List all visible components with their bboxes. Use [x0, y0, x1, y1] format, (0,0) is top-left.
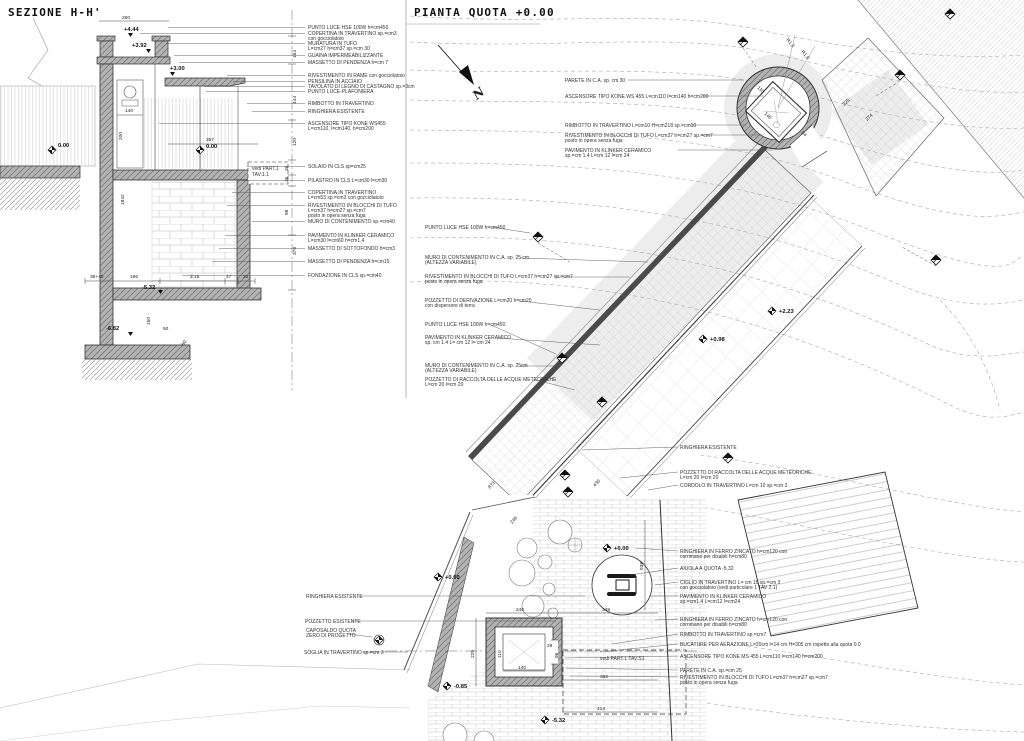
dim: 164 — [292, 50, 298, 58]
callout: RIMBOTTO IN TRAVERTINO — [308, 101, 374, 107]
level-marker: +4.44 — [124, 27, 139, 33]
level-marker: +0.00 — [445, 575, 460, 581]
architectural-drawing: vedi PART.1 TAV.S1 +2.23 +0.98 +0.00 +0.… — [0, 0, 1024, 741]
callout: BUCATURE PER AERAZIONE L=20cm l=14 cm H=… — [680, 642, 861, 648]
north-label: N — [469, 84, 488, 103]
callout: MURO DI CONTENIMENTO IN C.A. sp. 25cm(AL… — [425, 363, 528, 374]
dim: 196 — [130, 274, 138, 280]
callout: RIVESTIMENTO IN BLOCCHI DI TUFO L=cm37 h… — [680, 675, 828, 686]
dim: 378 — [292, 247, 298, 255]
callout: PILASTRO IN CLS L=cm30 l=cm30 — [308, 178, 387, 184]
callout: PUNTO LUCE HSE 100W h=cm450 — [425, 225, 506, 231]
dim: 47 — [226, 274, 232, 280]
level-marker: +0.98 — [710, 337, 725, 343]
dim: 140 — [518, 665, 526, 671]
level-marker: -5.32 — [142, 285, 155, 291]
callout: ASCENSORE TIPO KONE MS 455 L=cm110 l=cm1… — [680, 654, 823, 660]
callout: RIVESTIMENTO IN BLOCCHI DI TUFO L=cm37 h… — [565, 133, 713, 144]
dim: 36 — [284, 165, 290, 171]
section-drawing: SEZIONE H-H' 0.00 — [0, 0, 415, 398]
level-marker: -5.32 — [552, 718, 565, 724]
callout: CIGLIO IN TRAVERTINO L= cm 15 sp.=cm 3co… — [680, 580, 781, 591]
dim: 36 — [284, 176, 290, 182]
level-marker: 0.00 — [58, 143, 69, 149]
callout: POZZETTO DI RACCOLTA DELLE ACQUE METEORI… — [680, 470, 812, 481]
callout: RINGHIERA ESISTENTE — [680, 445, 737, 451]
level-marker: +3.92 — [132, 43, 147, 49]
dim: 225 — [470, 650, 476, 658]
dim: 120 — [292, 138, 298, 146]
callout: ASCENSORE TIPO KONE WS 455 L=cm110 l=cm1… — [565, 94, 709, 100]
dim: 39+40 — [90, 274, 104, 280]
level-marker: +3.00 — [170, 66, 185, 72]
callout: PARETE IN C.A. sp.=cm 25 — [680, 668, 742, 674]
dim: 414 — [597, 706, 605, 712]
callout: GUAINA IMPERMEABILIZZANTE — [308, 53, 384, 59]
callout: CAPOSALDO QUOTAZERO DI PROGETTO — [306, 628, 357, 639]
level-marker: +0.00 — [614, 546, 629, 552]
plan-title: PIANTA QUOTA +0.00 — [414, 6, 555, 19]
callout: AIUOLA A QUOTA -5.32 — [680, 566, 734, 572]
level-marker: -0.85 — [454, 684, 468, 690]
callout: POZZETTO DI DERIVAZIONE L=cm20 h=cm20con… — [425, 298, 532, 309]
level-marker: +2.23 — [779, 309, 794, 315]
background-facade — [140, 98, 235, 168]
callout: PUNTO LUCE-PLAFONIERA — [308, 89, 374, 95]
level-marker: -6.82 — [106, 326, 119, 332]
callout: RINGHIERA ESISTENTE — [306, 594, 363, 600]
section-title: SEZIONE H-H' — [8, 6, 102, 19]
drawing-sheet: vedi PART.1 TAV.S1 +2.23 +0.98 +0.00 +0.… — [0, 0, 1024, 741]
callout: MURO DI CONTENIMENTO IN C.A. sp. 25 cm(A… — [425, 255, 529, 266]
dim: 246 — [516, 607, 524, 613]
dim: 349 — [602, 607, 610, 613]
callout: MASSETTO DI PENDENZA h=cm15 — [308, 259, 390, 265]
dim: 150 — [146, 317, 152, 325]
callout: CORDOLO IN TRAVERTINO L=cm 10 sp.=cm 3 — [680, 483, 787, 489]
dim: 20 — [243, 274, 249, 280]
dim: 362 — [600, 674, 608, 680]
callout: FONDAZIONE IN CLS sp.=cm40 — [308, 273, 382, 279]
callout: SOLAIO IN CLS sp=cm25 — [308, 164, 366, 170]
benchmark-caposaldo — [374, 635, 384, 645]
dim: 98 — [284, 209, 290, 215]
dim: 938 — [639, 562, 645, 570]
callout: COPERTINA IN TRAVERTINOL=cm53 sp.=cm3 co… — [308, 190, 384, 201]
callout: RIMBOTTO IN TRAVERTINO sp.=cm7 — [680, 632, 766, 638]
dim: 1842 — [120, 194, 126, 205]
callout: RIVESTIMENTO IN BLOCCHI DI TUFO L=cm37 h… — [425, 274, 573, 285]
callout: MASSETTO DI SOTTOFONDO h=cm3 — [308, 246, 395, 252]
dim: 110 — [497, 650, 503, 658]
callout: RIMBOTTO IN TRAVERTINO L=cm10 H=cm218 sp… — [565, 123, 696, 129]
callout: SOGLIA IN TRAVERTINO sp.=cm 3 — [304, 650, 384, 656]
callout: PARETE IN C.A. sp. cm 30 — [565, 78, 625, 84]
north-arrow: N — [438, 45, 488, 103]
dim: 96 — [554, 652, 560, 658]
callout: MASSETTO DI PENDENZA h=cm 7 — [308, 60, 388, 66]
callout: PAVIMENTO IN KLINKER CERAMICOsp.=cm 1.4 … — [565, 148, 651, 159]
level-marker: 0.00 — [206, 144, 217, 150]
callout: PAVIMENTO IN KLINKER CERAMICOsp. cm 1.4 … — [425, 335, 511, 346]
dim: 260 — [122, 15, 130, 21]
dim: 28 — [547, 643, 553, 649]
callout: MURO DI CONTENIMENTO sp.=cm40 — [308, 219, 395, 225]
dim: 50 — [163, 326, 169, 332]
dim: 444 — [292, 96, 298, 104]
dim: 430 — [592, 478, 602, 488]
callout: PAVIMENTO IN KLINKER CERAMICOsp.=cm1.4 L… — [680, 594, 766, 605]
dim: 357 — [206, 137, 214, 143]
callout: POZZETTO ESISTENTE — [305, 619, 361, 625]
dim: 200 — [118, 132, 124, 140]
callout: RINGHIERA ESISTENTE — [308, 109, 365, 115]
dim: 2.15 — [190, 274, 200, 280]
callout: PUNTO LUCE HSE 100W h=cm450 — [425, 322, 506, 328]
dim: 140 — [125, 108, 133, 114]
